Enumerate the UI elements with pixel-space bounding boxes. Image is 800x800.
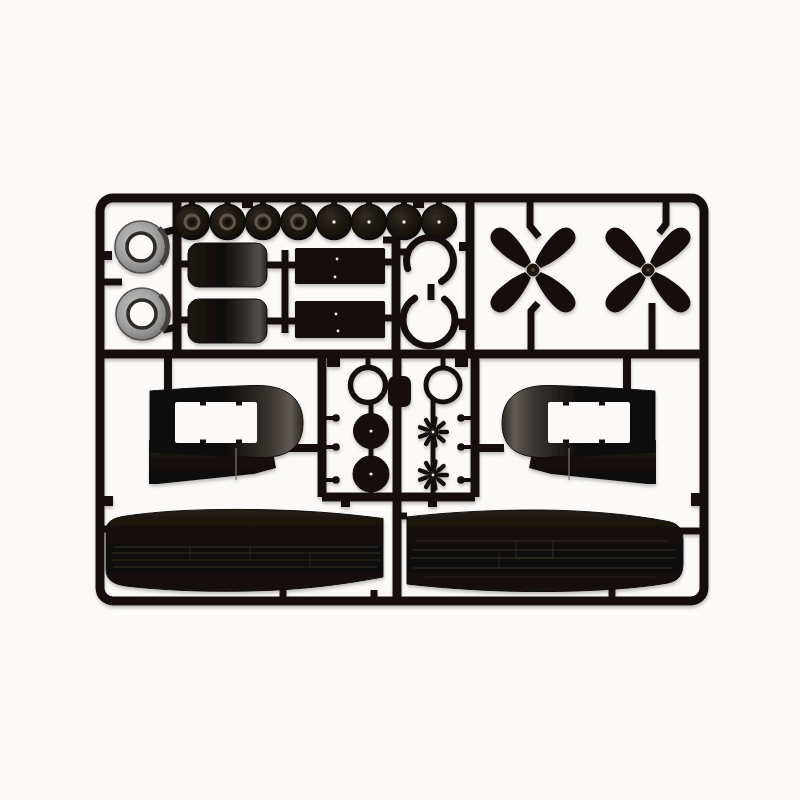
gate-tab [459,242,470,251]
gate-tab [242,200,253,208]
wheel-part [175,205,210,240]
engine-cowling-ring-part [116,288,168,340]
panel-part [295,301,385,338]
gate-tab [459,320,473,330]
photo-stage: Injection-molded black plastic model kit… [0,0,800,800]
gate-tab [428,499,437,507]
gate-tab [691,493,701,506]
gate-tab [327,356,340,367]
gate-tab [413,200,424,208]
engine-cylinder-part [188,243,267,287]
gate-tab [455,357,468,367]
intake-block-part [388,376,411,407]
wheel-disc-part [353,456,389,492]
wheel-part [210,205,245,240]
wheel-disc-part [354,414,389,449]
wheel-part [387,205,422,240]
wheel-part [317,205,352,240]
sprue-photo: Injection-molded black plastic model kit… [0,0,800,800]
engine-cowling-ring-part [115,221,167,273]
panel-part [295,248,385,284]
wheel-part [281,205,316,240]
wheel-part [352,205,387,240]
gate-tab [341,499,350,507]
gate-tab [104,251,112,260]
wing-half-part [106,509,383,591]
engine-cylinder-part [188,299,267,343]
wing-half-part [407,510,683,592]
wheel-part [246,205,281,240]
gate-tab [104,496,113,506]
